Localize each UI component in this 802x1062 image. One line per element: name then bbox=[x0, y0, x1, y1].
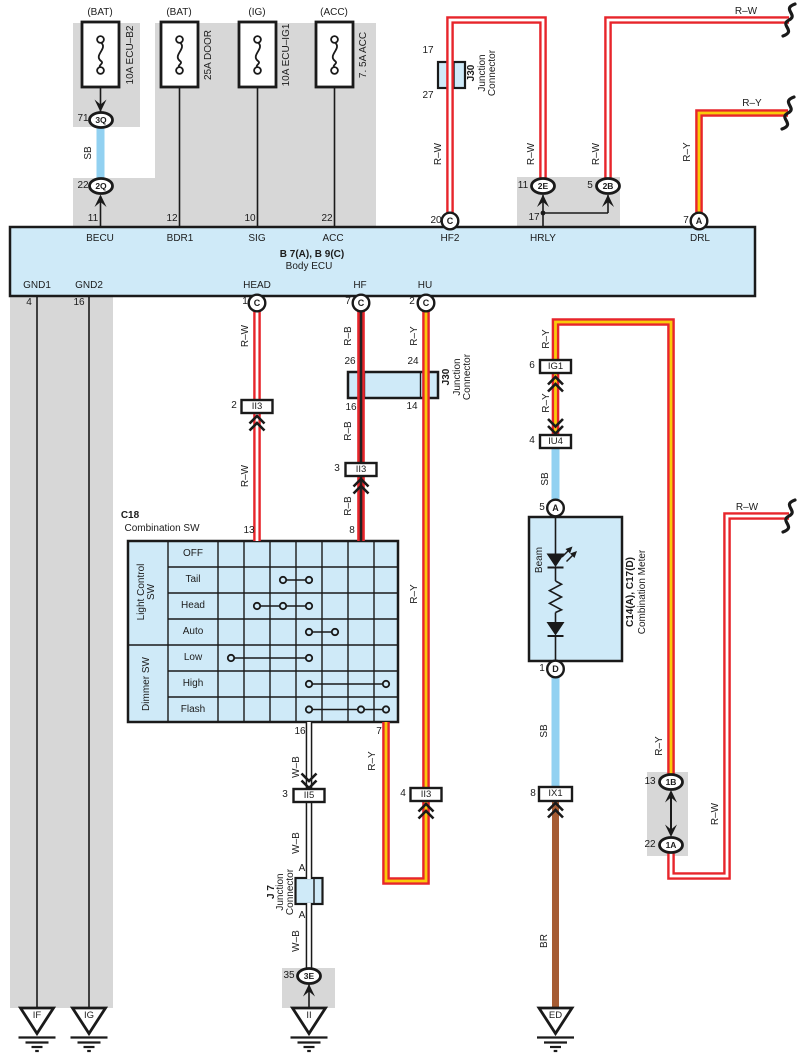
terminal-label: HEAD bbox=[243, 281, 271, 291]
wire-color-label: SB bbox=[84, 146, 94, 159]
wire-color-label: R–B bbox=[344, 326, 354, 345]
pin-number: 4 bbox=[26, 298, 32, 308]
pin-number: 8 bbox=[530, 789, 536, 799]
wire-color-label: R–W bbox=[711, 803, 721, 825]
ground-code: II bbox=[306, 1011, 311, 1021]
fuse-type-label: (ACC) bbox=[320, 8, 348, 18]
wire-color-label: R–W bbox=[527, 143, 537, 165]
connector-code: D bbox=[552, 664, 559, 674]
wire-color-label: BR bbox=[540, 934, 550, 948]
terminal-label: HF bbox=[353, 281, 366, 291]
pin-number: 16 bbox=[345, 403, 356, 413]
fuse-name-label: 10A ECU–IG1 bbox=[282, 24, 292, 87]
pin-number: A bbox=[299, 911, 306, 921]
wire-color-label: R–Y bbox=[410, 584, 420, 603]
pin-number: 71 bbox=[77, 114, 88, 124]
pin-number: A bbox=[299, 864, 306, 874]
connector-code: IG1 bbox=[548, 362, 563, 372]
switch-position-label: Low bbox=[184, 653, 202, 663]
terminal-label: BECU bbox=[86, 234, 114, 244]
switch-position-label: Head bbox=[181, 601, 205, 611]
wire-color-label: W–B bbox=[292, 832, 302, 854]
connector-code: C bbox=[423, 298, 430, 308]
pin-number: 7 bbox=[683, 216, 689, 226]
pin-number: 1 bbox=[242, 297, 248, 307]
pin-number: 4 bbox=[529, 436, 535, 446]
switch-group-label: Dimmer SW bbox=[142, 657, 152, 711]
component-title: Junction Connector bbox=[453, 354, 473, 400]
pin-number: 7 bbox=[376, 727, 382, 737]
pin-number: 5 bbox=[587, 181, 593, 191]
wire-color-label: R–W bbox=[592, 143, 602, 165]
component-title: Junction Connector bbox=[276, 869, 296, 915]
connector-code: 1B bbox=[666, 777, 677, 787]
component-title: Body ECU bbox=[286, 262, 333, 272]
terminal-label: ACC bbox=[322, 234, 343, 244]
fuse-type-label: (BAT) bbox=[166, 8, 191, 18]
wire-color-label: SB bbox=[540, 724, 550, 737]
connector-code: II3 bbox=[356, 465, 367, 475]
pin-number: 11 bbox=[518, 181, 528, 191]
terminal-label: GND2 bbox=[75, 281, 103, 291]
connector-code: C bbox=[447, 216, 454, 226]
component-title: C14(A), C17(D) bbox=[626, 557, 636, 627]
ground-code: IG bbox=[84, 1011, 94, 1021]
component-title: Combination SW bbox=[124, 524, 199, 534]
fuse-type-label: (BAT) bbox=[87, 8, 112, 18]
wire-color-label: R–Y bbox=[655, 736, 665, 755]
ground-code: ED bbox=[549, 1011, 562, 1021]
terminal-label: HU bbox=[418, 281, 432, 291]
component-title: J30 bbox=[467, 65, 477, 82]
wire-color-label: R–Y bbox=[542, 329, 552, 348]
fuse-name-label: 10A ECU–B2 bbox=[126, 26, 136, 85]
wire-color-label: W–B bbox=[292, 756, 302, 778]
connector-code: II3 bbox=[252, 402, 263, 412]
wire-color-label: R–W bbox=[434, 143, 444, 165]
connector-code: C bbox=[358, 298, 365, 308]
fuse-type-label: (IG) bbox=[248, 8, 265, 18]
switch-position-label: Tail bbox=[185, 575, 200, 585]
pin-number: 12 bbox=[166, 214, 177, 224]
wire-color-label: R–W bbox=[241, 325, 251, 347]
ground-code: IF bbox=[33, 1011, 41, 1021]
wire-color-label: R–Y bbox=[368, 751, 378, 770]
wire-color-label: R–W bbox=[735, 7, 757, 17]
connector-code: II5 bbox=[304, 791, 315, 801]
pin-number: 5 bbox=[539, 503, 545, 513]
connector-code: 2B bbox=[603, 181, 614, 191]
wire-color-label: R–W bbox=[736, 503, 758, 513]
pin-number: 1 bbox=[539, 664, 545, 674]
connector-code: 2E bbox=[538, 181, 548, 191]
wire-color-label: R–B bbox=[344, 421, 354, 440]
pin-number: 4 bbox=[400, 789, 406, 799]
connector-code: A bbox=[552, 503, 559, 513]
pin-number: 6 bbox=[529, 361, 535, 371]
component-title: Junction Connector bbox=[478, 50, 498, 96]
pin-number: 3 bbox=[334, 464, 340, 474]
terminal-label: BDR1 bbox=[167, 234, 194, 244]
pin-number: 22 bbox=[321, 214, 332, 224]
pin-number: 10 bbox=[244, 214, 255, 224]
terminal-label: HF2 bbox=[441, 234, 460, 244]
pin-number: 16 bbox=[294, 727, 305, 737]
pin-number: 17 bbox=[422, 46, 433, 56]
fuse-name-label: 7. 5A ACC bbox=[359, 32, 369, 78]
switch-group-label: Light Control SW bbox=[137, 564, 157, 621]
terminal-label: GND1 bbox=[23, 281, 51, 291]
pin-number: 3 bbox=[282, 790, 288, 800]
pin-number: 2 bbox=[409, 297, 415, 307]
pin-number: 22 bbox=[77, 181, 88, 191]
indicator-label: Beam bbox=[535, 547, 545, 573]
wire-color-label: R–W bbox=[241, 465, 251, 487]
component-title: B 7(A), B 9(C) bbox=[280, 250, 344, 260]
connector-code: 1A bbox=[666, 840, 677, 850]
terminal-label: HRLY bbox=[530, 234, 556, 244]
connector-code: 2Q bbox=[95, 181, 106, 191]
component-title: Combination Meter bbox=[638, 550, 648, 634]
pin-number: 16 bbox=[73, 298, 84, 308]
wire-color-label: R–Y bbox=[683, 142, 693, 161]
switch-position-label: Flash bbox=[181, 705, 205, 715]
pin-number: 35 bbox=[283, 971, 294, 981]
pin-number: 26 bbox=[344, 357, 355, 367]
wire-color-label: R–Y bbox=[742, 99, 761, 109]
connector-code: 3E bbox=[304, 971, 314, 981]
terminal-label: SIG bbox=[248, 234, 265, 244]
pin-number: 17 bbox=[528, 213, 539, 223]
component-title: C18 bbox=[121, 511, 139, 521]
wire-color-label: R–Y bbox=[542, 393, 552, 412]
component-title: J30 bbox=[442, 369, 452, 386]
pin-number: 11 bbox=[88, 214, 98, 224]
connector-code: IX1 bbox=[548, 789, 562, 799]
pin-number: 22 bbox=[644, 840, 655, 850]
wire-color-label: SB bbox=[541, 472, 551, 485]
connector-code: 3Q bbox=[95, 115, 106, 125]
pin-number: 27 bbox=[422, 91, 433, 101]
switch-position-label: OFF bbox=[183, 549, 203, 559]
pin-number: 2 bbox=[231, 401, 237, 411]
switch-position-label: Auto bbox=[183, 627, 204, 637]
pin-number: 14 bbox=[406, 402, 417, 412]
switch-position-label: High bbox=[183, 679, 204, 689]
wire-color-label: R–B bbox=[344, 496, 354, 515]
connector-code: II3 bbox=[421, 790, 432, 800]
pin-number: 20 bbox=[430, 216, 441, 226]
wire-color-label: W–B bbox=[292, 930, 302, 952]
fuse-name-label: 25A DOOR bbox=[204, 30, 214, 80]
wiring-diagram: (BAT)(BAT)(IG)(ACC)10A ECU–B225A DOOR10A… bbox=[0, 0, 802, 1062]
connector-code: IU4 bbox=[548, 437, 563, 447]
text-labels-layer: (BAT)(BAT)(IG)(ACC)10A ECU–B225A DOOR10A… bbox=[0, 0, 802, 1062]
terminal-label: DRL bbox=[690, 234, 710, 244]
connector-code: A bbox=[696, 216, 703, 226]
pin-number: 8 bbox=[349, 526, 355, 536]
wire-color-label: R–Y bbox=[410, 326, 420, 345]
pin-number: 7 bbox=[345, 297, 351, 307]
pin-number: 13 bbox=[243, 526, 254, 536]
pin-number: 13 bbox=[644, 777, 655, 787]
pin-number: 24 bbox=[407, 357, 418, 367]
connector-code: C bbox=[254, 298, 261, 308]
